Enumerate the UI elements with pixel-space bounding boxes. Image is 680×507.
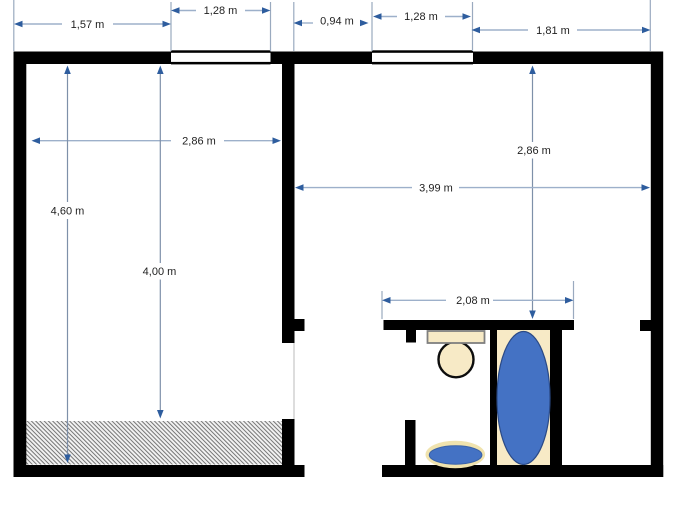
svg-text:2,08 m: 2,08 m [456,295,490,307]
svg-text:1,28 m: 1,28 m [204,5,238,17]
svg-text:1,57 m: 1,57 m [71,19,105,31]
svg-text:4,60 m: 4,60 m [51,206,85,218]
svg-text:1,28 m: 1,28 m [404,11,438,23]
svg-text:3,99 m: 3,99 m [419,183,453,195]
svg-text:4,00 m: 4,00 m [143,266,177,278]
svg-text:2,86 m: 2,86 m [182,136,216,148]
svg-text:2,86 m: 2,86 m [517,145,551,157]
svg-text:1,81 m: 1,81 m [536,25,570,37]
svg-text:0,94 m: 0,94 m [320,16,354,28]
